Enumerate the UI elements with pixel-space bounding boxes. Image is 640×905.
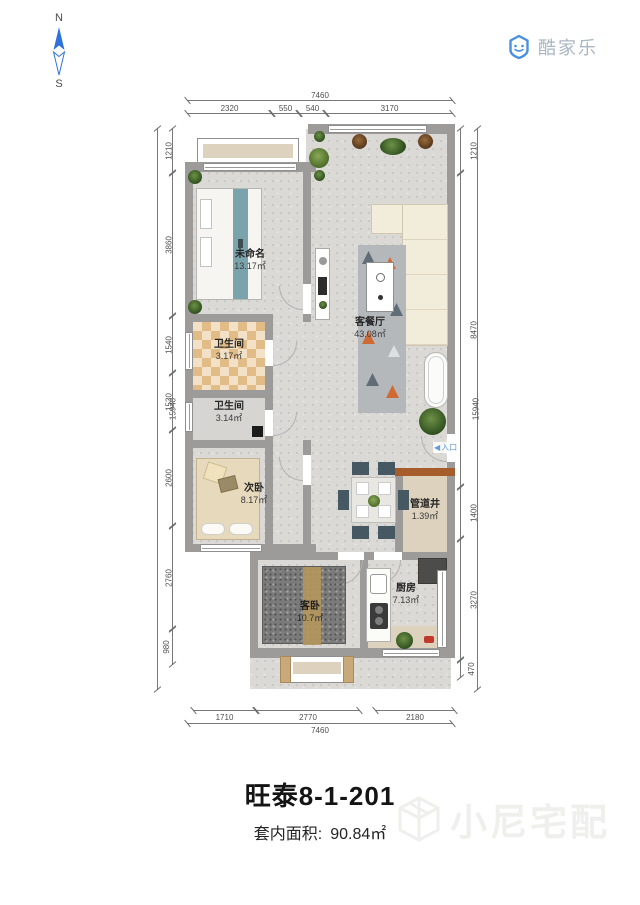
area-label: 套内面积: [254, 826, 322, 843]
pillow [201, 523, 225, 535]
compass-north-label: N [46, 12, 72, 24]
dim-label: 1710 [193, 713, 256, 722]
compass-icon [48, 25, 70, 77]
bedroom1-top-window [203, 163, 297, 171]
dining-chair [338, 490, 349, 510]
room-name: 卫生间 [190, 338, 268, 351]
bathroom-fixture [252, 426, 263, 437]
stove [370, 603, 388, 629]
plant-icon [188, 300, 202, 314]
tv-console [315, 248, 330, 320]
room-area: 3.14㎡ [190, 413, 268, 425]
dim-right-seg: 1400 [460, 487, 461, 539]
dim-label: 3860 [164, 236, 173, 254]
wall [250, 552, 258, 656]
plant-icon [418, 134, 433, 149]
dim-label: 3170 [326, 104, 453, 113]
floorplan-canvas: N S 酷家乐 [0, 0, 640, 905]
rug-pattern [366, 373, 379, 386]
bedroom1-door-gap [303, 284, 311, 314]
living-top-window [328, 125, 427, 133]
dim-label: 1540 [164, 336, 173, 354]
burner [375, 606, 383, 614]
dim-label: 2600 [164, 469, 173, 487]
room-area: 10.7㎡ [268, 613, 352, 625]
place-setting [378, 482, 391, 495]
dim-bottom-seg: 2180 [375, 710, 455, 711]
kitchen-item [424, 636, 434, 643]
dining-chair [352, 526, 369, 539]
dim-label: 470 [467, 662, 476, 675]
room-name: 未命名 [205, 248, 295, 261]
place-setting [378, 505, 391, 518]
dining-chair [378, 462, 395, 475]
bed-runner-detail [238, 239, 243, 248]
room-label-bedroom1: 未命名 13.17㎡ [205, 248, 295, 273]
area-value: 90.84㎡ [330, 826, 386, 843]
rug-pattern [386, 385, 399, 398]
bay-window-sill [293, 662, 341, 674]
dim-label: 2770 [256, 713, 360, 722]
dim-label: 2180 [375, 713, 455, 722]
plant-icon [352, 134, 367, 149]
room-name: 客餐厅 [325, 316, 415, 329]
room-name: 次卧 [212, 482, 296, 495]
pillow [200, 199, 212, 229]
dining-chair [352, 462, 369, 475]
dim-label: 1210 [164, 142, 173, 160]
kitchen-door-gap [374, 552, 402, 560]
dim-label: 15940 [472, 398, 481, 420]
bedroom2-door-gap [303, 455, 311, 485]
dim-label: 550 [272, 104, 299, 113]
plant-icon [368, 495, 380, 507]
plant-icon [188, 170, 202, 184]
dim-top-seg: 2320 [187, 113, 272, 114]
dim-bottom-total: 7460 [187, 723, 453, 724]
watermark: 小尼宅配 [396, 792, 610, 846]
dim-top-total: 7460 [187, 100, 453, 101]
watermark-cube-icon [396, 795, 442, 843]
outside-notch-bottom-left [180, 552, 250, 692]
room-area: 13.17㎡ [205, 261, 295, 273]
room-area: 8.17㎡ [212, 495, 296, 507]
bathtub [424, 352, 448, 408]
plant-icon [309, 148, 329, 168]
sofa-chaise [371, 204, 403, 234]
dim-right-total: 15940 [477, 128, 478, 690]
dim-left-seg: 2600 [172, 430, 173, 526]
coffee-table [366, 262, 394, 312]
room-label-pipe-shaft: 管道井 1.39㎡ [398, 498, 452, 523]
room-area: 7.13㎡ [366, 595, 446, 607]
place-setting [356, 482, 369, 495]
dim-label: 7460 [187, 726, 453, 735]
wall [185, 390, 273, 398]
bay-window-bedroom1-sill [203, 144, 293, 158]
dim-label: 1530 [164, 393, 173, 411]
dim-top-seg: 540 [299, 113, 326, 114]
room-name: 厨房 [366, 582, 446, 595]
dim-label: 7460 [187, 91, 453, 100]
logo-icon [506, 34, 532, 60]
plant-icon [380, 138, 406, 155]
compass-south-label: S [46, 78, 72, 90]
bay-window-post [343, 656, 354, 683]
plant-icon [419, 408, 446, 435]
wall [185, 314, 273, 322]
room-label-living: 客餐厅 43.08㎡ [325, 316, 415, 341]
dim-top-seg: 550 [272, 113, 299, 114]
dim-bottom-seg: 2770 [256, 710, 360, 711]
dim-left-seg: 2760 [172, 526, 173, 629]
logo-text: 酷家乐 [538, 34, 598, 60]
plant-icon [396, 632, 413, 649]
room-label-bathroom1: 卫生间 3.17㎡ [190, 338, 268, 363]
pillow [229, 523, 253, 535]
dim-label: 2320 [187, 104, 272, 113]
compass: N S [46, 12, 72, 90]
guestroom-door-gap [338, 552, 364, 560]
plant-icon [314, 131, 325, 142]
dining-chair [378, 526, 395, 539]
dim-right-seg: 8470 [460, 173, 461, 487]
entrance-marker: ◀ 入口 [433, 442, 458, 453]
entrance-arrow-icon: ◀ [434, 443, 440, 452]
room-label-bedroom2: 次卧 8.17㎡ [212, 482, 296, 507]
table-decor [376, 273, 385, 282]
wall [185, 440, 273, 448]
dim-label: 540 [299, 104, 326, 113]
room-name: 客卧 [268, 600, 352, 613]
room-area: 1.39㎡ [398, 511, 452, 523]
room-label-bathroom2: 卫生间 3.14㎡ [190, 400, 268, 425]
dim-top-seg: 3170 [326, 113, 453, 114]
app-logo: 酷家乐 [506, 34, 598, 60]
place-setting [356, 505, 369, 518]
dim-label: 980 [162, 640, 171, 653]
room-name: 卫生间 [190, 400, 268, 413]
kitchen-bottom-window [382, 649, 440, 657]
dim-label: 2760 [164, 569, 173, 587]
room-area: 3.17㎡ [190, 351, 268, 363]
plant-icon [314, 170, 325, 181]
bathtub-inner [428, 356, 444, 404]
plant-icon [319, 301, 327, 309]
dim-right-seg: 3270 [460, 539, 461, 660]
dim-left-seg: 1210 [172, 128, 173, 173]
tv-icon [318, 277, 327, 295]
dim-left-seg: 980 [172, 629, 173, 665]
console-item [319, 257, 327, 265]
room-label-kitchen: 厨房 7.13㎡ [366, 582, 446, 607]
room-name: 管道井 [398, 498, 452, 511]
dim-left-seg: 3860 [172, 173, 173, 316]
dim-bottom-seg: 1710 [193, 710, 256, 711]
dim-left-seg: 1540 [172, 316, 173, 373]
burner [375, 617, 383, 625]
table-decor [378, 295, 383, 300]
bedroom2-bottom-window [200, 544, 262, 552]
wall [447, 124, 455, 658]
dim-left-seg: 1530 [172, 373, 173, 430]
dim-right-seg: 470 [460, 660, 461, 678]
bed [196, 188, 262, 300]
dining-table [351, 477, 396, 523]
room-label-guestroom: 客卧 10.7㎡ [268, 600, 352, 625]
bay-window-post [280, 656, 291, 683]
watermark-text: 小尼宅配 [450, 792, 610, 846]
entrance-label: 入口 [441, 442, 457, 453]
room-area: 43.08㎡ [325, 329, 415, 341]
dim-left-total: 15940 [157, 128, 158, 690]
dim-right-seg: 1210 [460, 128, 461, 173]
rug-pattern [388, 345, 400, 357]
